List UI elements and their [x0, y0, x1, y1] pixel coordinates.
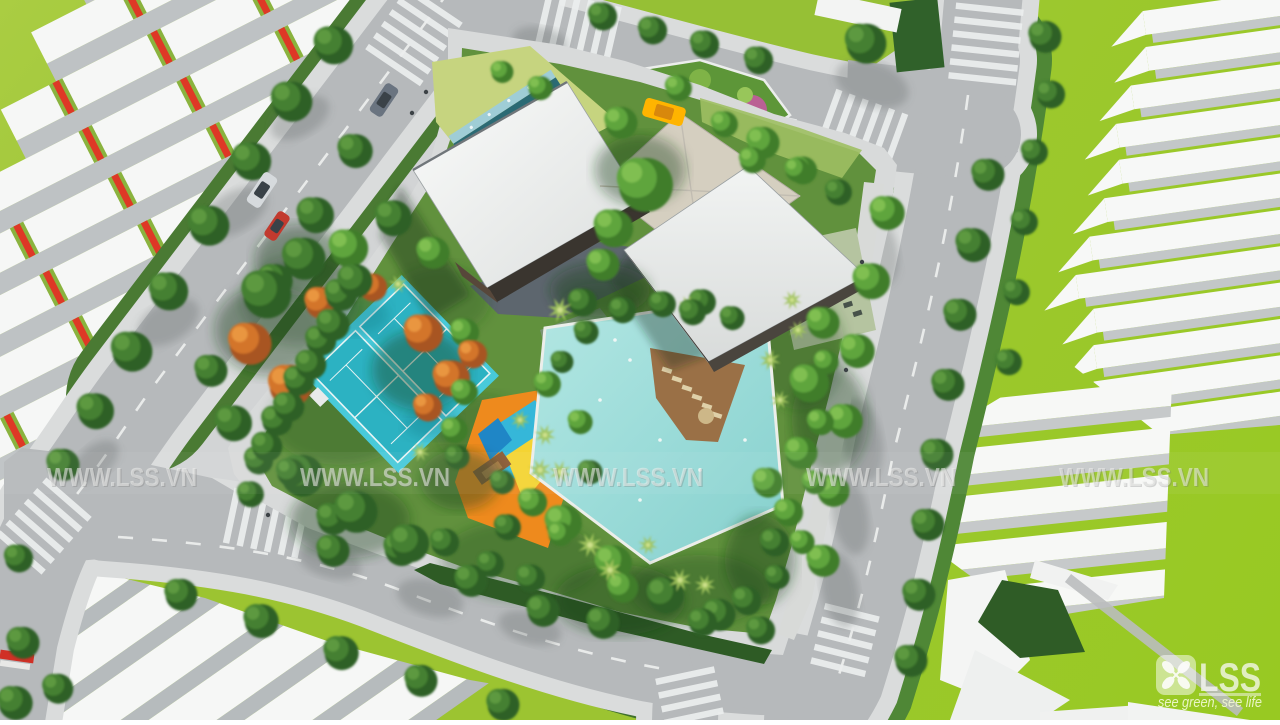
svg-text:see green, see life: see green, see life: [1158, 694, 1262, 711]
svg-text:WWW.LSS.VN: WWW.LSS.VN: [553, 462, 703, 492]
svg-text:WWW.LSS.VN: WWW.LSS.VN: [300, 462, 450, 492]
svg-text:WWW.LSS.VN: WWW.LSS.VN: [806, 462, 956, 492]
svg-text:WWW.LSS.VN: WWW.LSS.VN: [47, 462, 197, 492]
svg-text:WWW.LSS.VN: WWW.LSS.VN: [1059, 462, 1209, 492]
